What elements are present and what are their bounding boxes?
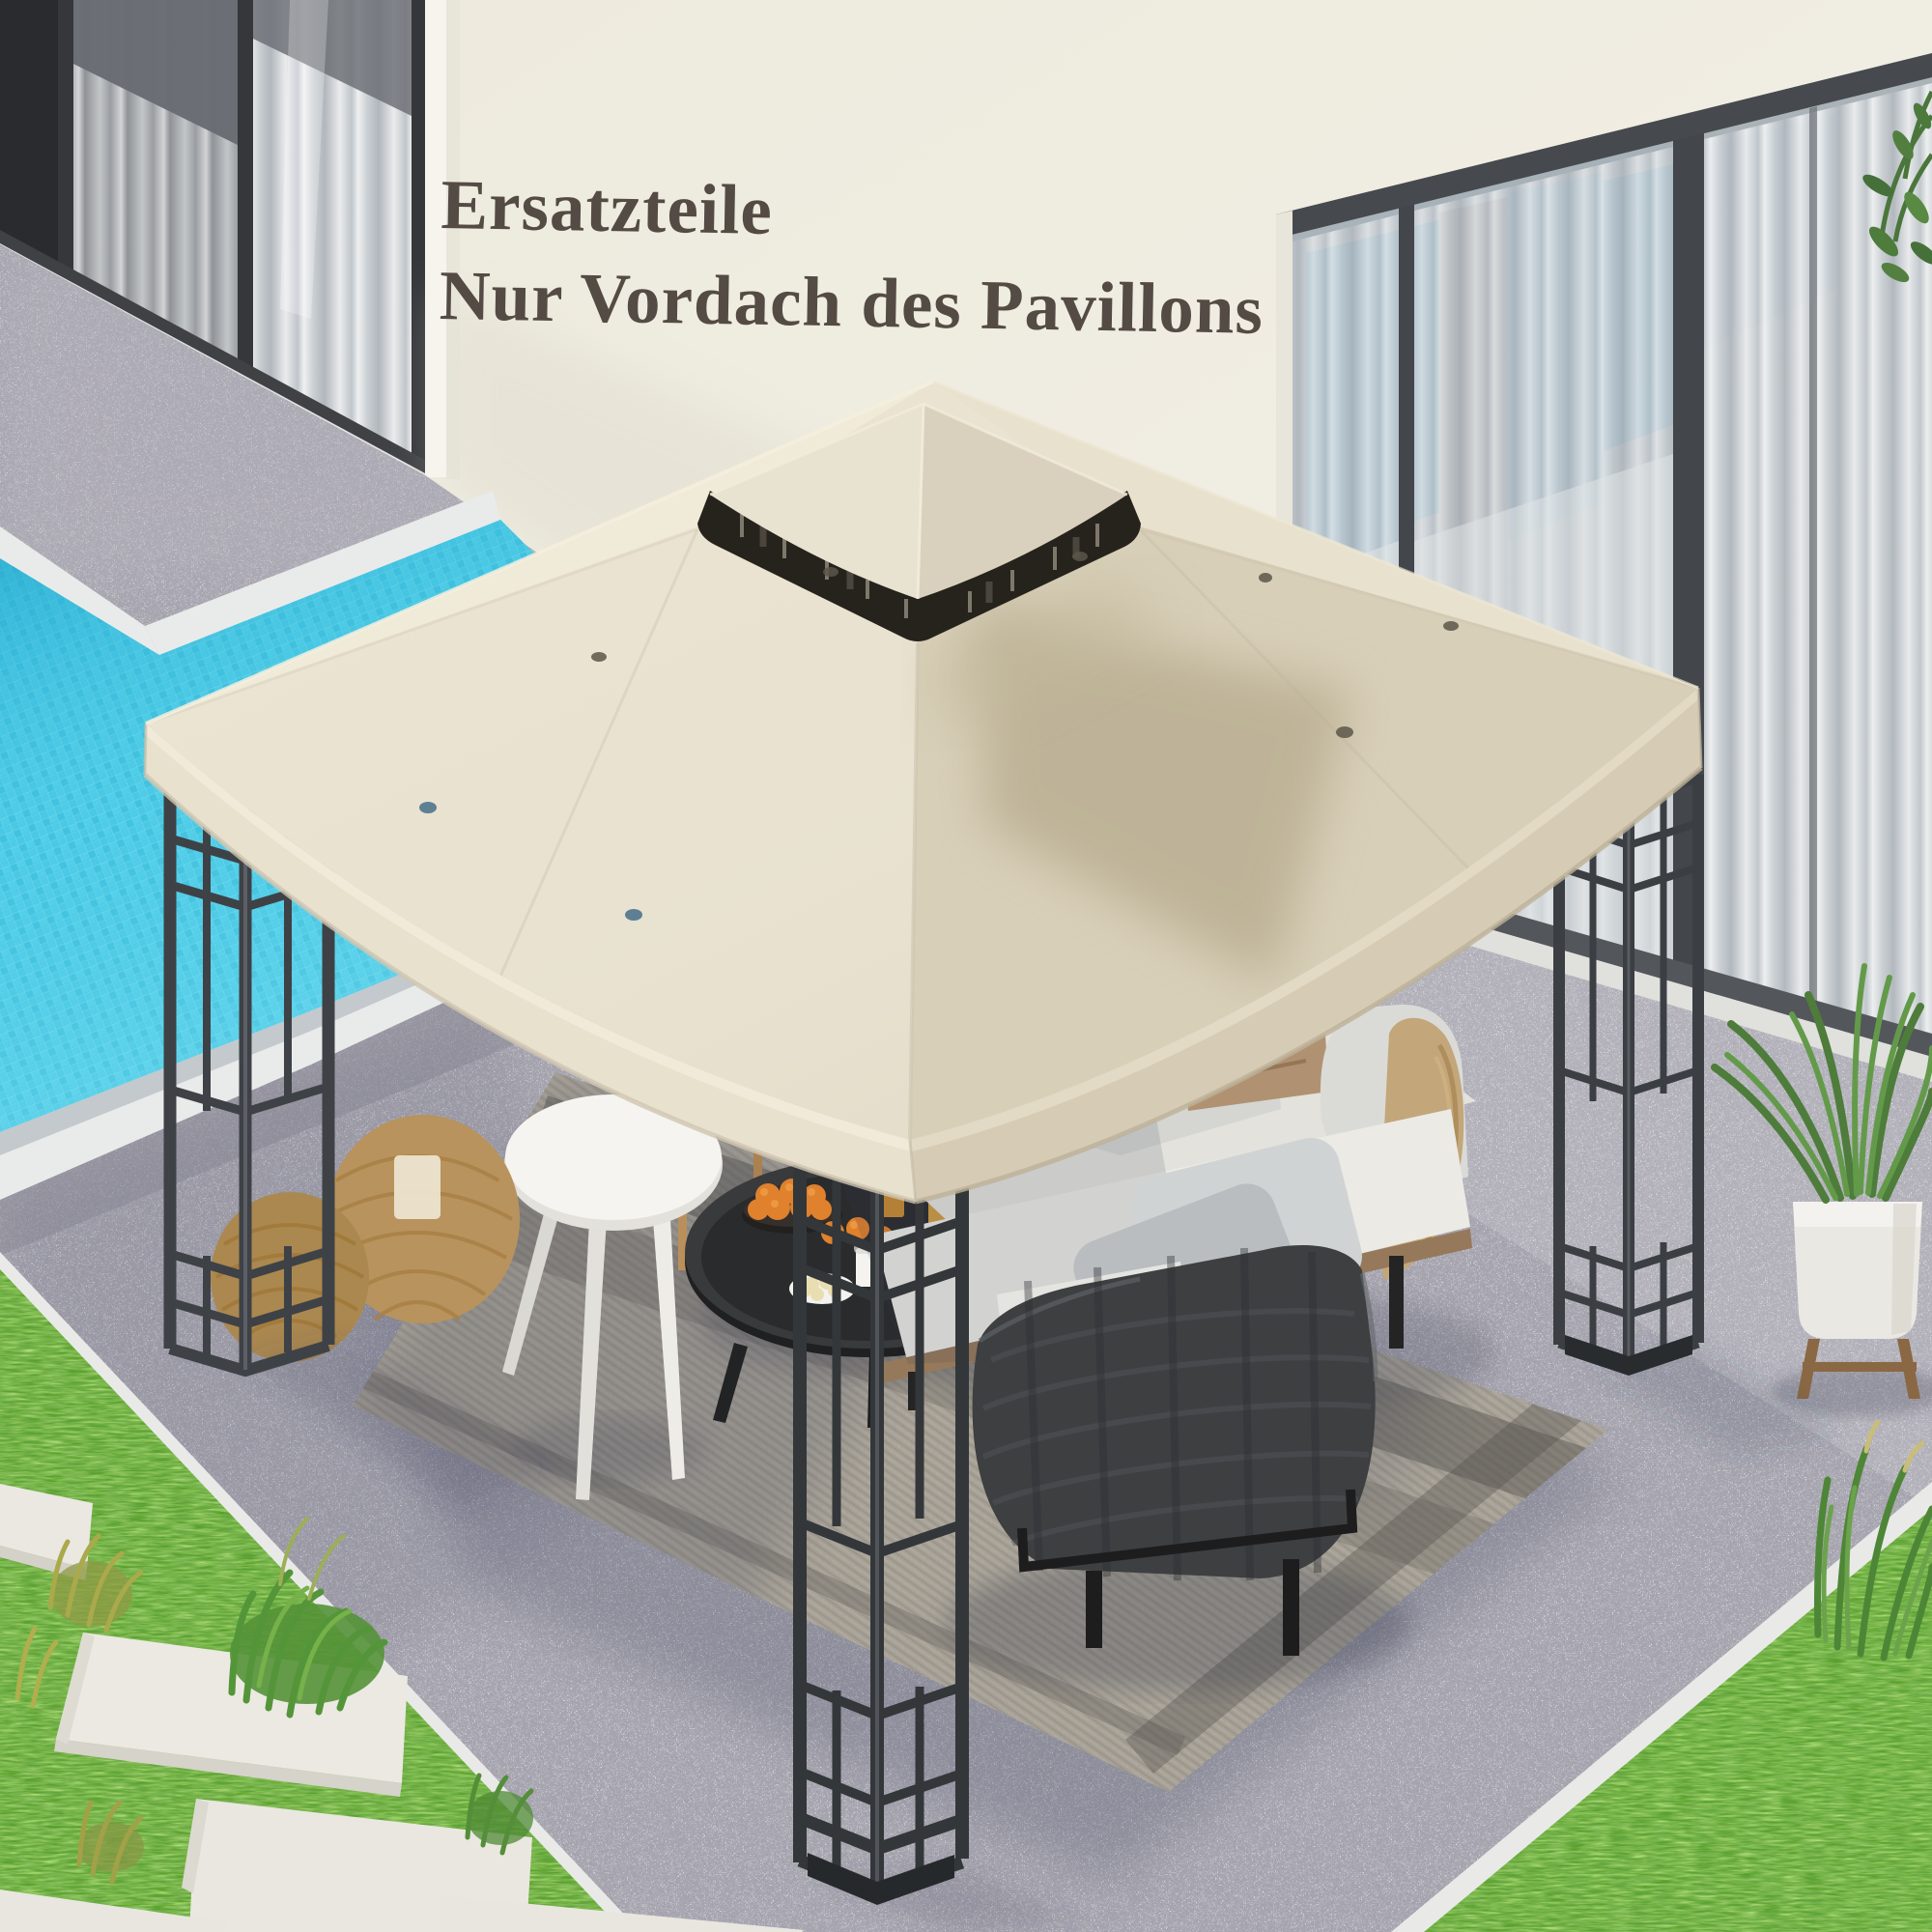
svg-text:Nur Vordach des Pavillons: Nur Vordach des Pavillons (439, 256, 1264, 349)
svg-text:Ersatzteile: Ersatzteile (440, 165, 774, 249)
